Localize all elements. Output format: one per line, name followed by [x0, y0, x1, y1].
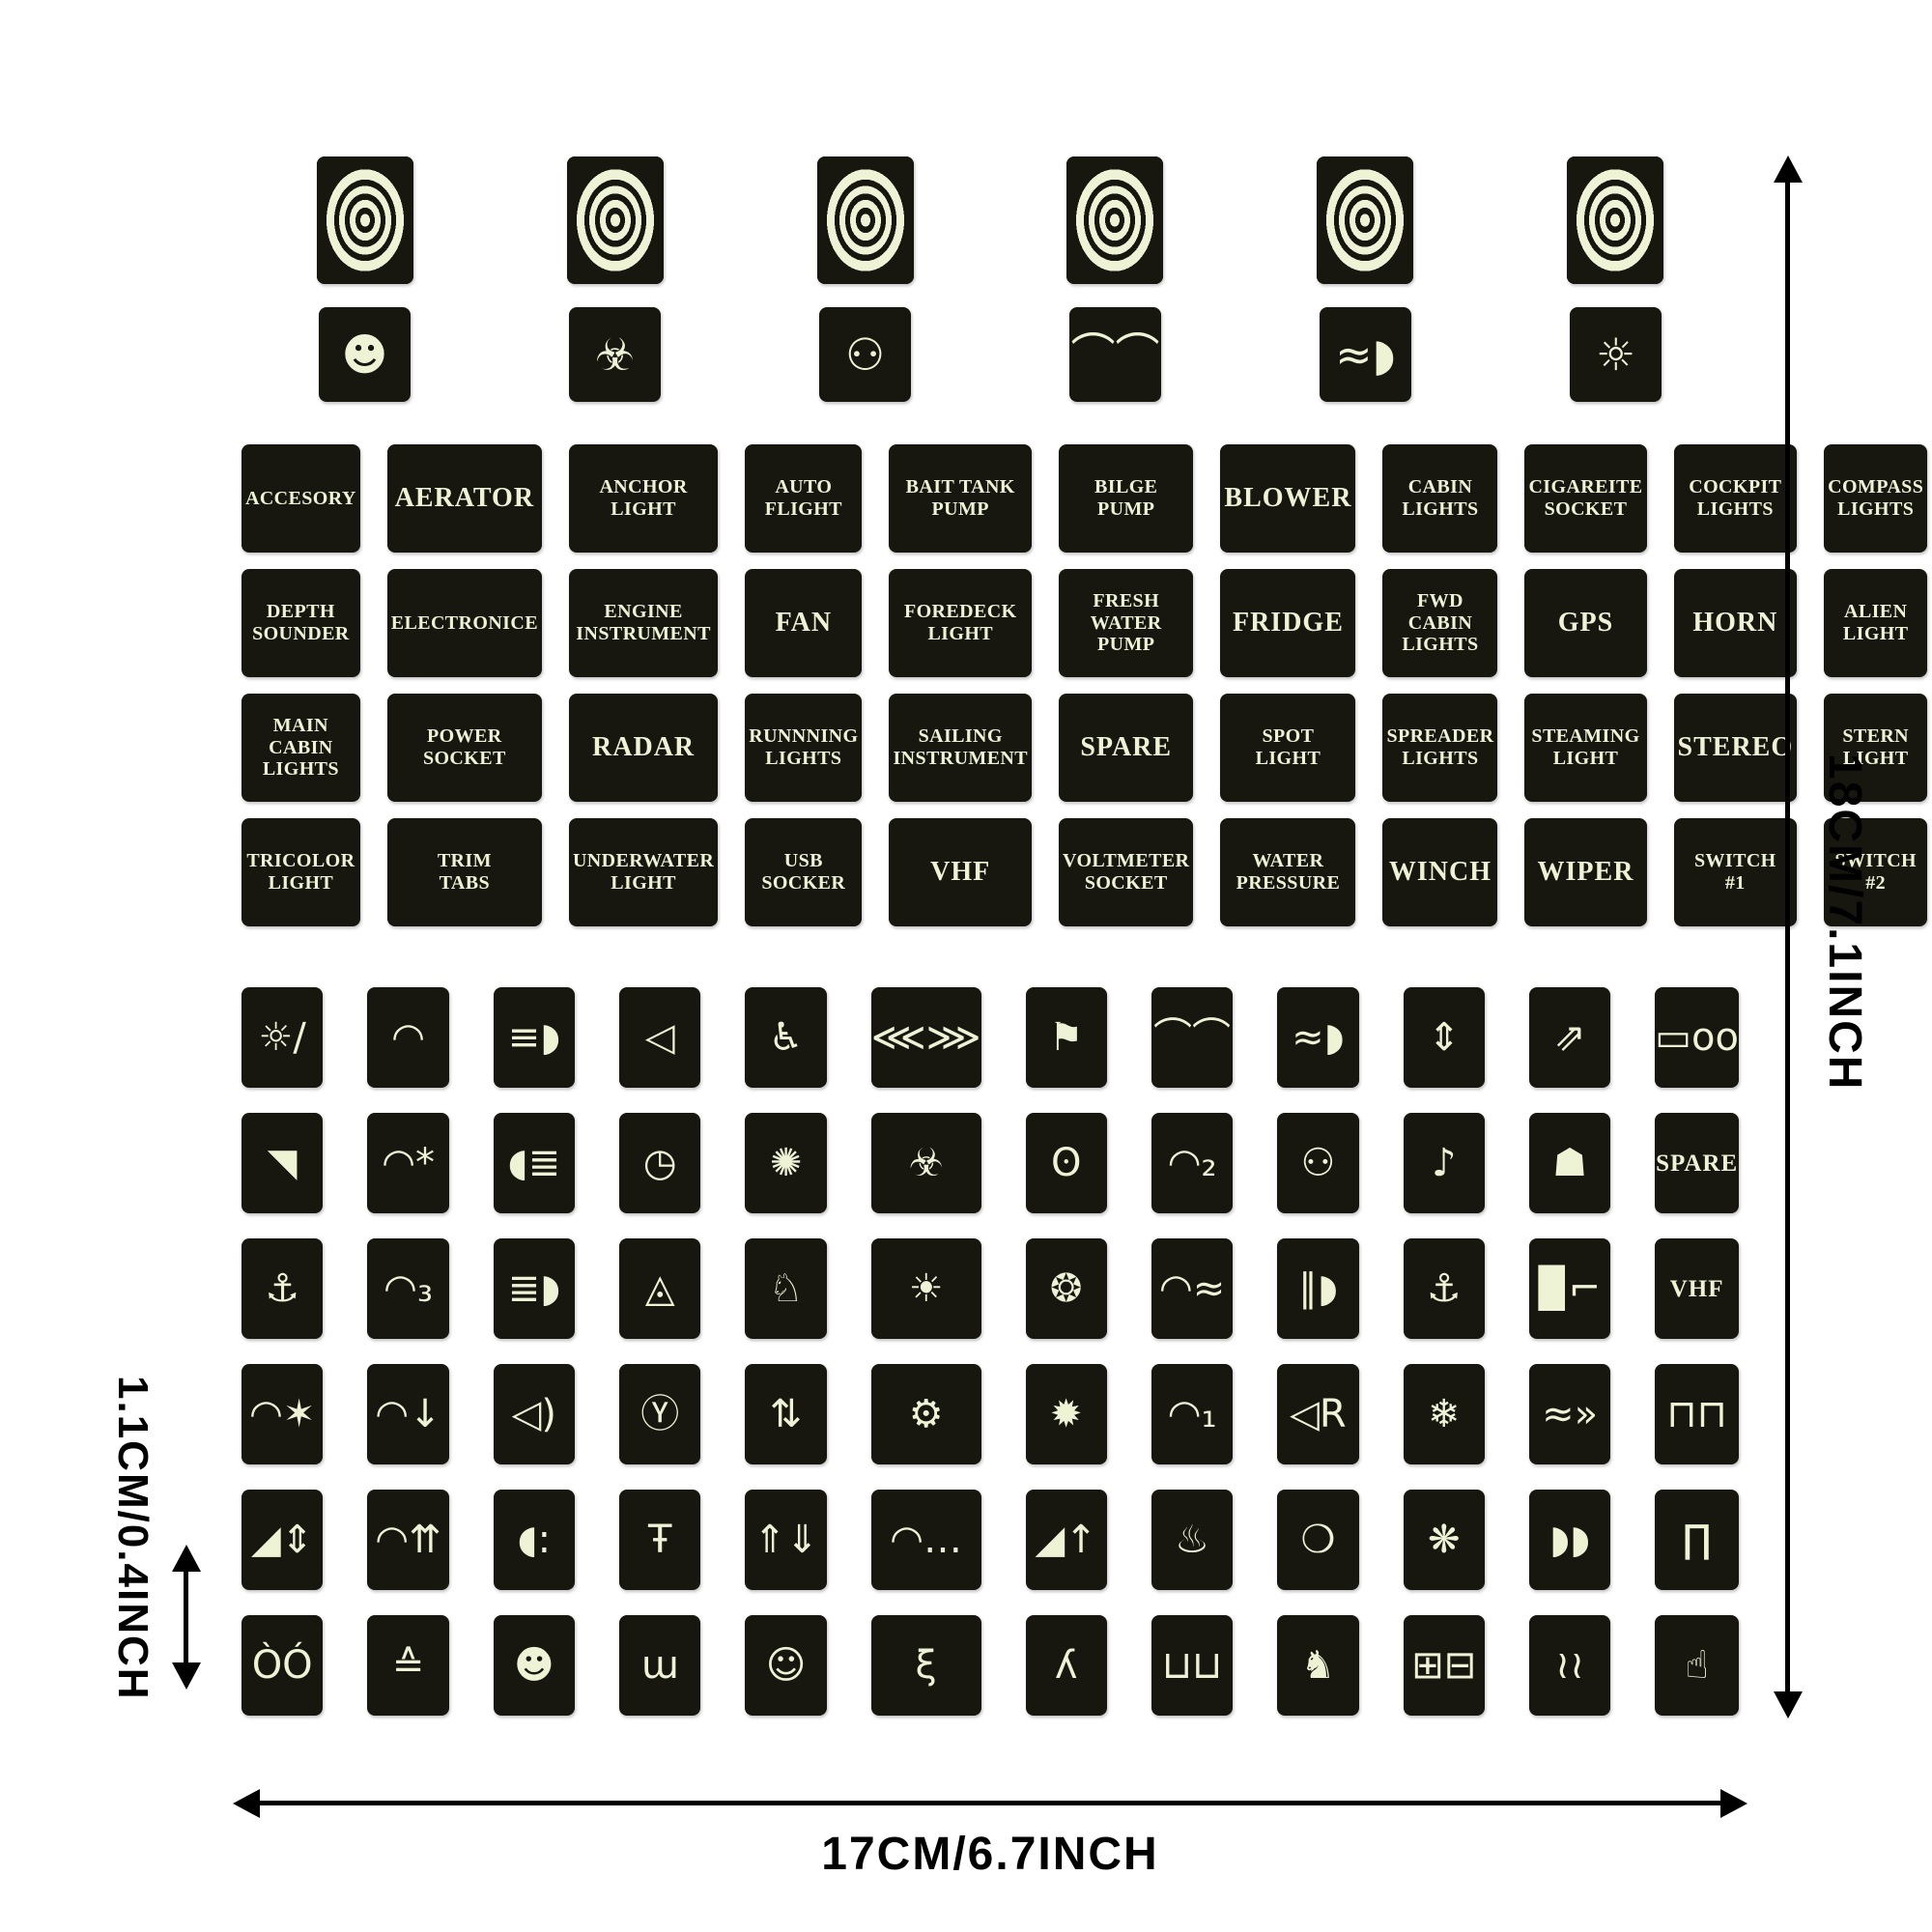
wiper-washer-icon: ◠* — [367, 1113, 448, 1213]
icon-glyph: ☼∕ — [259, 1018, 306, 1057]
light-dial-icon: ☼ — [1570, 307, 1662, 402]
icon-glyph: ◠₂ — [1168, 1144, 1217, 1182]
switch-label-text: FRESH WATER PUMP — [1063, 590, 1189, 656]
wiper-delay-2-icon: ◠₂ — [1151, 1113, 1233, 1213]
switch-label-text: COMPASS LIGHTS — [1828, 476, 1923, 521]
bullseye-target-sticker — [1567, 156, 1663, 284]
icon-glyph: ⚓ — [1427, 1269, 1462, 1308]
icon-glyph: ◠✶ — [249, 1395, 315, 1434]
icon-grid: ☼∕ ◠ ≡◗ ◁ ♿ ⋘⋙ ⚑ — [241, 987, 1739, 1716]
switch-label-text: ACCESORY — [245, 488, 356, 510]
icon-glyph: ◖: — [518, 1520, 552, 1559]
icon-glyph: ⌒⌒ — [1071, 332, 1160, 377]
trim-arrows-icon: ⇕ — [1404, 987, 1485, 1088]
outboard-tilt-icon: ⇗ — [1529, 987, 1610, 1088]
turtle-icon: ☗ — [1529, 1113, 1610, 1213]
width-dimension-arrow — [243, 1801, 1737, 1805]
flood-light-icon: ◖: — [494, 1490, 575, 1590]
switch-label-text: USB SOCKER — [761, 850, 845, 895]
switch-label-text: CABIN LIGHTS — [1402, 476, 1478, 521]
icon-glyph: ☀ — [909, 1269, 944, 1308]
hand-gesture-icon: ☝ — [1655, 1615, 1739, 1716]
switch-label-text: WINCH — [1389, 857, 1492, 888]
icon-glyph: ♨ — [1175, 1520, 1209, 1559]
switch-label-sticker: FOREDECK LIGHT — [889, 569, 1032, 677]
switch-label-sticker: STEREO — [1674, 694, 1798, 802]
icon-glyph: ≣◗ — [508, 1269, 561, 1308]
fluid-level-icon: ⇅ — [745, 1364, 826, 1464]
switch-label-sticker: CABIN LIGHTS — [1382, 444, 1497, 553]
icon-glyph: ⇑⇓ — [753, 1520, 818, 1559]
icon-glyph: ◠⇈ — [375, 1520, 440, 1559]
alien-icon: ⚇ — [1277, 1113, 1358, 1213]
hazard-triangle-icon: ◬ — [619, 1238, 700, 1339]
switch-label-sticker: VOLTMETER SOCKET — [1059, 818, 1193, 926]
fan-icon: ❋ — [1404, 1490, 1485, 1590]
concentric-rings — [817, 156, 914, 284]
switch-label-text: FAN — [776, 608, 832, 639]
icon-glyph: ◁ — [645, 1018, 675, 1057]
switch-label-text: ENGINE INSTRUMENT — [576, 601, 711, 645]
wiper-delay-3-icon: ◠₃ — [367, 1238, 448, 1339]
switch-label-sticker: ACCESORY — [241, 444, 360, 553]
boat-lift-icon: ◢↑ — [1026, 1490, 1107, 1590]
sun-light-icon: ☀ — [871, 1238, 981, 1339]
icon-glyph: ◠₃ — [384, 1269, 433, 1308]
switch-label-text: BILGE PUMP — [1094, 476, 1157, 521]
switch-label-sticker: TRICOLOR LIGHT — [241, 818, 360, 926]
switch-label-text: DEPTH SOUNDER — [252, 601, 350, 645]
icon-glyph: ⌒⌒ — [1153, 1018, 1231, 1057]
icon-glyph: ◖≣ — [508, 1144, 561, 1182]
switch-label-text: BLOWER — [1224, 483, 1351, 514]
nav-lights-off-icon: ☼∕ — [241, 987, 323, 1088]
switch-label-text: TRICOLOR LIGHT — [246, 850, 355, 895]
icon-glyph: ◷ — [643, 1144, 677, 1182]
anchor-light-icon: ⚓ — [241, 1238, 323, 1339]
biohazard-icon: ☣ — [871, 1113, 981, 1213]
gauge-icon: ◷ — [619, 1113, 700, 1213]
fog-lamp-down-icon: ❍ — [1277, 1490, 1358, 1590]
switch-label-sticker: UNDERWATER LIGHT — [569, 818, 718, 926]
switch-label-text: HORN — [1692, 608, 1777, 639]
switch-label-sticker: ALIEN LIGHT — [1824, 569, 1927, 677]
icon-glyph: ◥ — [268, 1144, 298, 1182]
switch-label-sticker: HORN — [1674, 569, 1798, 677]
biohazard-icon: ☣ — [569, 307, 661, 402]
icon-glyph: ◠… — [890, 1520, 962, 1559]
icon-glyph: ɯ — [641, 1646, 679, 1685]
icon-glyph: ☻ — [342, 332, 388, 377]
icon-glyph: ≡◗ — [508, 1018, 561, 1057]
icon-glyph: ◢⇕ — [251, 1520, 313, 1559]
switch-label-sticker: AERATOR — [387, 444, 542, 553]
icon-glyph: ⚙ — [909, 1395, 944, 1434]
icon-glyph: ⇅ — [770, 1395, 803, 1434]
monkey-icon: ☺ — [745, 1615, 826, 1716]
icon-glyph: ☼ — [1596, 332, 1635, 377]
boat-trim-icon: ◢⇕ — [241, 1490, 323, 1590]
icon-glyph: ♞ — [1300, 1646, 1335, 1685]
wiper-spray-icon: ⌒⌒ — [1151, 987, 1233, 1088]
switch-label-sticker: COMPASS LIGHTS — [1824, 444, 1927, 553]
switch-label-sticker: VHF — [889, 818, 1032, 926]
icon-glyph: ⚑ — [1049, 1018, 1084, 1057]
icon-glyph: ♪ — [1432, 1144, 1457, 1182]
angry-eyes-icon: ÒÓ — [241, 1615, 323, 1716]
switch-label-text: WATER PRESSURE — [1236, 850, 1341, 895]
driving-light-icon: ∥◗ — [1277, 1238, 1358, 1339]
icon-glyph: ⚇ — [845, 332, 885, 377]
icon-glyph: ❋ — [1428, 1520, 1461, 1559]
switch-label-text: COCKPIT LIGHTS — [1689, 476, 1781, 521]
width-dimension-label: 17CM/6.7INCH — [241, 1828, 1739, 1881]
faucet-icon: Ŧ — [619, 1490, 700, 1590]
icon-glyph: ✹ — [1050, 1395, 1083, 1434]
switch-label-text: STEAMING LIGHT — [1531, 725, 1639, 770]
wiper-down-icon: ◠↓ — [367, 1364, 448, 1464]
switch-label-text: ANCHOR LIGHT — [599, 476, 687, 521]
icon-glyph: ◬ — [645, 1269, 675, 1308]
switch-label-sticker: RUNNNING LIGHTS — [745, 694, 862, 802]
icon-glyph: ∏ — [1682, 1520, 1711, 1559]
cabin-heat-icon: ♨ — [1151, 1490, 1233, 1590]
switch-label-sticker: SAILING INSTRUMENT — [889, 694, 1032, 802]
switch-label-sticker: CIGAREITE SOCKET — [1524, 444, 1646, 553]
switch-label-text: SAILING INSTRUMENT — [893, 725, 1028, 770]
fog-light-icon: ≈◗ — [1320, 307, 1411, 402]
switch-label-sticker: SPREADER LIGHTS — [1382, 694, 1497, 802]
flames-icon: ≀≀ — [1529, 1615, 1610, 1716]
gangster-face-icon: ☻ — [494, 1615, 575, 1716]
icon-glyph: ✺ — [770, 1144, 803, 1182]
battery-icon: ⊞⊟ — [1404, 1615, 1485, 1716]
icon-glyph: Ŧ — [648, 1520, 671, 1559]
switch-label-sticker: GPS — [1524, 569, 1646, 677]
target-row — [241, 156, 1739, 288]
switch-label-text: POWER SOCKET — [423, 725, 506, 770]
spare-text-sticker: SPARE — [1655, 1113, 1739, 1213]
high-beam-icon: ≣◗ — [494, 1238, 575, 1339]
switch-label-text: SPOT LIGHT — [1256, 725, 1321, 770]
cell-height-dimension-arrow — [184, 1555, 188, 1679]
switch-label-sticker: COCKPIT LIGHTS — [1674, 444, 1798, 553]
icon-glyph: ≀≀ — [1555, 1646, 1584, 1685]
switch-label-sticker: USB SOCKER — [745, 818, 862, 926]
icon-glyph: ◁) — [512, 1395, 556, 1434]
switch-label-sticker: DEPTH SOUNDER — [241, 569, 360, 677]
detective-icon: ≙ — [367, 1615, 448, 1716]
tow-truck-icon: ▭oo — [1655, 987, 1739, 1088]
fuel-pump-icon: ▉⌐ — [1529, 1238, 1610, 1339]
bullseye-target-sticker — [817, 156, 914, 284]
icon-glyph: ◠* — [382, 1144, 435, 1182]
snowflake-icon: ❄ — [1404, 1364, 1485, 1464]
dual-headlights-icon: ◗◗ — [1529, 1490, 1610, 1590]
switch-label-text: ELECTRONICE — [391, 612, 538, 635]
steering-wheel-icon: Ⓨ — [619, 1364, 700, 1464]
icon-glyph: ◠ — [391, 1018, 425, 1057]
novelty-row: ☻ ☣ ⚇ ⌒⌒ ≈◗ ☼ — [241, 307, 1739, 404]
bullseye-target-sticker — [317, 156, 413, 284]
icon-glyph: ☻ — [514, 1646, 554, 1685]
height-dimension-label: 18CM/7.1INCH — [1818, 753, 1871, 1179]
bunny-icon: ♞ — [1277, 1615, 1358, 1716]
icon-glyph: ⇕ — [1428, 1018, 1461, 1057]
switch-label-text: RUNNNING LIGHTS — [749, 725, 858, 770]
height-dimension-arrow — [1785, 166, 1790, 1708]
lamp-check-icon: ◖≣ — [494, 1113, 575, 1213]
icon-glyph: ❂ — [1050, 1269, 1083, 1308]
icon-glyph: ☣ — [909, 1144, 944, 1182]
switch-label-text: ALIEN LIGHT — [1843, 601, 1909, 645]
icon-glyph: Ⓨ — [640, 1395, 679, 1434]
switch-label-text: FOREDECK LIGHT — [904, 601, 1017, 645]
lights-fishing-icon: ≈» — [1529, 1364, 1610, 1464]
rabbit-icon: ♘ — [745, 1238, 826, 1339]
windshield-wiper-icon: ◠ — [367, 987, 448, 1088]
switch-label-text: SPREADER LIGHTS — [1386, 725, 1493, 770]
icon-glyph: ▉⌐ — [1539, 1269, 1601, 1308]
icon-glyph: ≈◗ — [1292, 1018, 1345, 1057]
horn-icon: ◁) — [494, 1364, 575, 1464]
switch-label-text: MAIN CABIN LIGHTS — [245, 715, 356, 781]
grill-light-icon: ◠✶ — [241, 1364, 323, 1464]
beer-mugs-icon: ⊔⊔ — [1151, 1615, 1233, 1716]
switch-label-sticker: SPOT LIGHT — [1220, 694, 1355, 802]
switch-label-sticker: WINCH — [1382, 818, 1497, 926]
switch-label-text: VHF — [930, 857, 990, 888]
icon-glyph: ⇗ — [1553, 1018, 1586, 1057]
switch-label-text: GPS — [1558, 608, 1613, 639]
bullseye-target-sticker — [1066, 156, 1163, 284]
switch-label-sticker: ANCHOR LIGHT — [569, 444, 718, 553]
concentric-rings — [1066, 156, 1163, 284]
label-grid: ACCESORY AERATOR ANCHOR LIGHT AUTO FLIGH… — [241, 444, 1739, 926]
wheelchair-icon: ♿ — [745, 987, 826, 1088]
switch-label-text: FWD CABIN LIGHTS — [1386, 590, 1493, 656]
bullseye-target-sticker — [567, 156, 664, 284]
icon-glyph: ⚓ — [265, 1269, 299, 1308]
switch-label-sticker: TRIM TABS — [387, 818, 542, 926]
icon-glyph: ⋘⋙ — [871, 1018, 981, 1057]
switch-label-text: UNDERWATER LIGHT — [573, 850, 714, 895]
icon-glyph: ⚇ — [1300, 1144, 1335, 1182]
wiper-washpump-icon: ◠≈ — [1151, 1238, 1233, 1339]
wiper-delay-1-icon: ◠₁ — [1151, 1364, 1233, 1464]
wiper-washer-icon: ⌒⌒ — [1069, 307, 1161, 402]
icon-glyph: ▭oo — [1655, 1018, 1739, 1057]
light-bar-icon: ⊓⊓ — [1655, 1364, 1739, 1464]
icon-glyph: ξ — [915, 1646, 936, 1685]
speaker-icon: ◁ — [619, 987, 700, 1088]
switch-label-sticker: WATER PRESSURE — [1220, 818, 1355, 926]
switch-label-text: WIPER — [1538, 857, 1634, 888]
icon-glyph: ≈» — [1542, 1395, 1598, 1434]
boat-flag-icon: ⚑ — [1026, 987, 1107, 1088]
icon-glyph: ☣ — [595, 332, 635, 377]
switch-label-text: RADAR — [592, 732, 695, 763]
switch-label-text: CIGAREITE SOCKET — [1528, 476, 1642, 521]
icon-glyph: ☝ — [1685, 1646, 1708, 1685]
switch-label-text: FRIDGE — [1233, 608, 1344, 639]
engine-piston-icon: ⚙ — [871, 1364, 981, 1464]
switch-label-text: BAIT TANK PUMP — [906, 476, 1015, 521]
bigfoot-icon: ʎ — [1026, 1615, 1107, 1716]
icon-glyph: ◗◗ — [1549, 1520, 1590, 1559]
switch-label-sticker: MAIN CABIN LIGHTS — [241, 694, 360, 802]
switch-label-text: STEREO — [1678, 732, 1794, 763]
switch-label-text: VOLTMETER SOCKET — [1063, 850, 1189, 895]
icon-glyph: ⊓⊓ — [1666, 1395, 1726, 1434]
bullseye-target-sticker — [1317, 156, 1413, 284]
switch-label-text: TRIM TABS — [438, 850, 492, 895]
arch-frame-icon: ∏ — [1655, 1490, 1739, 1590]
sticker-sheet-product-image: ☻ ☣ ⚇ ⌒⌒ ≈◗ ☼ ACCESORY — [0, 0, 1932, 1932]
bulb-rays-icon: ✹ — [1026, 1364, 1107, 1464]
hatch-lift-icon: ⇑⇓ — [745, 1490, 826, 1590]
switch-label-text: AERATOR — [395, 483, 534, 514]
switch-label-sticker: BAIT TANK PUMP — [889, 444, 1032, 553]
sonar-boat-icon: ◥ — [241, 1113, 323, 1213]
vhf-text-sticker: VHF — [1655, 1238, 1739, 1339]
cell-height-dimension-label: 1.1CM/0.4INCH — [108, 1376, 156, 1830]
switch-label-text: SPARE — [1080, 732, 1172, 763]
icon-glyph: ⊔⊔ — [1162, 1646, 1222, 1685]
air-horn-icon: ◁R — [1277, 1364, 1358, 1464]
icon-glyph: ♿ — [769, 1018, 804, 1057]
icon-glyph: ∥◗ — [1298, 1269, 1338, 1308]
switch-label-text: AUTO FLIGHT — [765, 476, 842, 521]
switch-label-sticker: AUTO FLIGHT — [745, 444, 862, 553]
switch-label-sticker: SWITCH #1 — [1674, 818, 1798, 926]
switch-label-sticker: ENGINE INSTRUMENT — [569, 569, 718, 677]
beacon-icon: ✺ — [745, 1113, 826, 1213]
switch-label-sticker: STEAMING LIGHT — [1524, 694, 1646, 802]
icon-glyph: ʘ — [1051, 1144, 1081, 1182]
switch-label-sticker: RADAR — [569, 694, 718, 802]
switch-label-sticker: WIPER — [1524, 818, 1646, 926]
icon-glyph: ʎ — [1055, 1646, 1078, 1685]
spreader-light-icon: ❂ — [1026, 1238, 1107, 1339]
icon-glyph: ❍ — [1300, 1520, 1335, 1559]
switch-label-sticker: ELECTRONICE — [387, 569, 542, 677]
dome-light-icon: ◠… — [871, 1490, 981, 1590]
switch-label-sticker: SPARE — [1059, 694, 1193, 802]
bulb-ring-icon: ʘ — [1026, 1113, 1107, 1213]
switch-label-sticker: BILGE PUMP — [1059, 444, 1193, 553]
concentric-rings — [567, 156, 664, 284]
switch-label-sticker: FWD CABIN LIGHTS — [1382, 569, 1497, 677]
alien-icon: ⚇ — [819, 307, 911, 402]
icon-glyph: ◠↓ — [375, 1395, 440, 1434]
poodle-icon: ξ — [871, 1615, 981, 1716]
headlight-beam-icon: ≡◗ — [494, 987, 575, 1088]
switch-label-sticker: FRIDGE — [1220, 569, 1355, 677]
concentric-rings — [1317, 156, 1413, 284]
wings-icon: ⋘⋙ — [871, 987, 981, 1088]
icon-glyph: ≙ — [392, 1646, 425, 1685]
switch-label-sticker: FRESH WATER PUMP — [1059, 569, 1193, 677]
concentric-rings — [1567, 156, 1663, 284]
icon-glyph: ◠≈ — [1159, 1269, 1225, 1308]
icon-glyph: ☗ — [1552, 1144, 1587, 1182]
icon-glyph: ❄ — [1428, 1395, 1461, 1434]
icon-glyph: VHF — [1670, 1277, 1724, 1301]
anchor-icon: ⚓ — [1404, 1238, 1485, 1339]
icon-glyph: ⊞⊟ — [1411, 1646, 1476, 1685]
defroster-icon: ◠⇈ — [367, 1490, 448, 1590]
icon-glyph: SPARE — [1656, 1151, 1738, 1176]
music-note-icon: ♪ — [1404, 1113, 1485, 1213]
icon-glyph: ♘ — [769, 1269, 804, 1308]
switch-label-sticker: FAN — [745, 569, 862, 677]
icon-glyph: ◠₁ — [1168, 1395, 1217, 1434]
concentric-rings — [317, 156, 413, 284]
switch-label-text: SWITCH #1 — [1694, 850, 1776, 895]
mustache-face-icon: ɯ — [619, 1615, 700, 1716]
icon-glyph: ≈◗ — [1335, 332, 1396, 377]
icon-glyph: ◢↑ — [1036, 1520, 1097, 1559]
icon-glyph: ☺ — [766, 1646, 807, 1685]
switch-label-sticker: BLOWER — [1220, 444, 1355, 553]
switch-label-sticker: POWER SOCKET — [387, 694, 542, 802]
gangster-face-icon: ☻ — [319, 307, 411, 402]
fog-light-icon: ≈◗ — [1277, 987, 1358, 1088]
icon-glyph: ÒÓ — [252, 1646, 313, 1685]
icon-glyph: ◁R — [1290, 1395, 1347, 1434]
